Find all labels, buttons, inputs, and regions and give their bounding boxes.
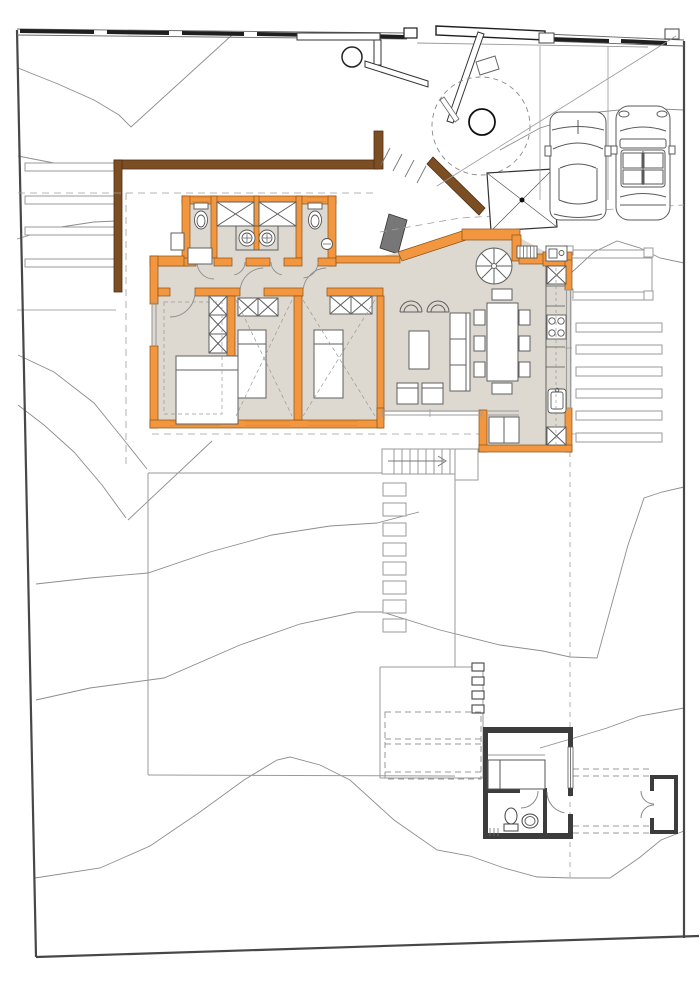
garden-step bbox=[383, 483, 406, 496]
deck-bar bbox=[576, 367, 662, 376]
entry-step bbox=[417, 166, 426, 183]
annex-wall bbox=[650, 775, 678, 779]
garden-step-small bbox=[472, 691, 484, 699]
coffee-table bbox=[409, 331, 429, 369]
bath-east-wall bbox=[328, 196, 336, 266]
fence-segment bbox=[550, 39, 609, 41]
garden-step bbox=[383, 562, 406, 575]
dining-chair bbox=[519, 336, 530, 351]
wardrobe bbox=[238, 298, 258, 316]
court-wall bbox=[297, 33, 380, 40]
fence-post bbox=[665, 29, 679, 39]
hall-south-wall bbox=[195, 288, 240, 296]
car-mirror bbox=[545, 146, 551, 156]
car-mirror bbox=[611, 146, 617, 154]
driveway-step bbox=[25, 259, 115, 267]
site-plan-svg bbox=[0, 0, 700, 990]
annex-wall bbox=[650, 818, 654, 834]
bedroom-partition bbox=[377, 296, 384, 420]
kitchen-cabinet bbox=[547, 266, 566, 284]
fence-post bbox=[539, 33, 554, 43]
guest-wall bbox=[568, 727, 573, 747]
corridor-north-wall bbox=[246, 258, 270, 266]
driveway-step bbox=[25, 227, 115, 235]
guest-wall bbox=[483, 833, 573, 839]
contour bbox=[36, 487, 684, 700]
toilet-tank bbox=[194, 203, 208, 209]
stair-nook-wall bbox=[462, 229, 520, 240]
annex-wall bbox=[650, 775, 654, 791]
pergola-post bbox=[644, 248, 653, 257]
hall-north-wall bbox=[336, 256, 400, 263]
wardrobe bbox=[209, 296, 227, 315]
entry-step bbox=[405, 160, 414, 177]
garden-step-small bbox=[472, 677, 484, 685]
retaining-wall-west bbox=[114, 160, 122, 292]
annex-door-arc bbox=[641, 805, 654, 818]
garden-step bbox=[383, 619, 406, 632]
guest-door-arc bbox=[547, 792, 564, 813]
guest-wall bbox=[483, 727, 488, 839]
toilet bbox=[309, 211, 322, 229]
hall-south-wall bbox=[264, 288, 303, 296]
hall-south-wall bbox=[158, 288, 170, 296]
bay-south-wall bbox=[479, 445, 572, 452]
bed-single bbox=[314, 330, 343, 398]
west-wall bbox=[150, 256, 158, 304]
dining-chair bbox=[519, 310, 530, 325]
pergola-post bbox=[644, 291, 653, 300]
guest-bed bbox=[488, 760, 545, 789]
deck-bar bbox=[576, 323, 662, 332]
spiral-stair bbox=[476, 248, 512, 284]
guest-door-arc bbox=[521, 791, 538, 808]
wardrobe bbox=[258, 298, 278, 316]
court-wall-angled bbox=[365, 61, 428, 87]
gate-leaf bbox=[476, 56, 499, 75]
garden-step bbox=[383, 543, 406, 556]
car-seat bbox=[644, 170, 663, 184]
column bbox=[342, 47, 362, 67]
fence-segment bbox=[20, 31, 94, 32]
gate-bar bbox=[436, 26, 545, 40]
annex-wall bbox=[674, 775, 678, 834]
deck-bar bbox=[576, 345, 662, 354]
guest-wall bbox=[483, 727, 573, 733]
kitchen-cabinet bbox=[547, 427, 566, 445]
boundary-south bbox=[36, 936, 699, 957]
car-seat bbox=[623, 153, 642, 168]
car-headlight bbox=[619, 111, 629, 117]
tree-trunk bbox=[469, 109, 495, 135]
court-wall bbox=[374, 40, 381, 65]
lounge-chair bbox=[422, 383, 443, 404]
dining-chair bbox=[474, 336, 485, 351]
bath-partition bbox=[296, 196, 302, 258]
car-mirror bbox=[669, 146, 675, 154]
wardrobe bbox=[351, 296, 372, 314]
contour bbox=[128, 441, 212, 520]
guest-wall-interior bbox=[543, 788, 547, 839]
canopy-dot bbox=[520, 198, 525, 203]
wardrobe bbox=[209, 315, 227, 334]
car-windshield-frame bbox=[620, 139, 666, 148]
contour bbox=[35, 757, 684, 878]
guest-toilet bbox=[505, 808, 517, 824]
garden-step-small bbox=[472, 663, 484, 671]
fence-segment bbox=[621, 41, 667, 43]
sofa bbox=[450, 313, 470, 391]
driveway-strips bbox=[25, 163, 115, 267]
closet-shower bbox=[217, 202, 254, 226]
floor-plan-page bbox=[0, 0, 700, 990]
car-mirror bbox=[605, 146, 611, 156]
bedroom-partition bbox=[294, 296, 302, 420]
lounge-chair bbox=[397, 383, 418, 404]
retaining-wall-entry bbox=[427, 157, 485, 215]
fence-segment bbox=[182, 33, 244, 34]
wardrobe bbox=[209, 334, 227, 353]
garden-step bbox=[383, 503, 406, 516]
west-wall bbox=[150, 346, 158, 428]
contour bbox=[18, 355, 147, 469]
garden-step bbox=[383, 581, 406, 594]
pergola-lower bbox=[385, 712, 481, 779]
corridor-north-wall bbox=[214, 258, 232, 266]
entry-step bbox=[393, 154, 402, 171]
driveway-step bbox=[25, 163, 115, 171]
fence-segment bbox=[107, 32, 169, 33]
dining-chair bbox=[492, 289, 512, 300]
guest-toilet-tank bbox=[504, 824, 518, 831]
wardrobe bbox=[330, 296, 351, 314]
shower-tray bbox=[188, 248, 212, 264]
retaining-wall-top bbox=[114, 160, 378, 169]
deck-bar bbox=[576, 411, 662, 420]
bath-partition bbox=[254, 196, 259, 250]
car-seat bbox=[644, 153, 663, 168]
dining-chair bbox=[474, 362, 485, 377]
lawn-edge bbox=[148, 775, 455, 776]
car-headlight bbox=[657, 111, 667, 117]
toilet-tank bbox=[308, 203, 322, 209]
garden-step bbox=[383, 600, 406, 613]
corridor-north-wall bbox=[284, 258, 302, 266]
guest-wall bbox=[568, 788, 573, 796]
deck-bar bbox=[576, 389, 662, 398]
dining-chair bbox=[492, 383, 512, 394]
dining-chair bbox=[474, 310, 485, 325]
deck-bar bbox=[576, 433, 662, 442]
guest-house bbox=[483, 727, 678, 839]
corridor-north-wall bbox=[318, 258, 336, 266]
cars bbox=[545, 106, 675, 220]
car-seat bbox=[623, 170, 642, 184]
stair-landing bbox=[455, 449, 478, 480]
bed-single bbox=[238, 330, 266, 398]
closet-shower bbox=[259, 202, 296, 226]
toilet bbox=[195, 211, 208, 229]
dining-table bbox=[487, 303, 518, 381]
dining-chair bbox=[519, 362, 530, 377]
driveway-step bbox=[25, 196, 115, 204]
annex-wall bbox=[650, 830, 678, 834]
annex-door-arc bbox=[641, 791, 654, 804]
fence-cap bbox=[404, 28, 417, 38]
planter-hatched bbox=[380, 214, 407, 254]
contour bbox=[36, 512, 419, 584]
hall-south-wall bbox=[327, 288, 383, 296]
garden-step bbox=[383, 523, 406, 536]
exterior-unit bbox=[171, 233, 184, 250]
contour bbox=[18, 35, 232, 127]
guest-wall bbox=[568, 814, 573, 839]
